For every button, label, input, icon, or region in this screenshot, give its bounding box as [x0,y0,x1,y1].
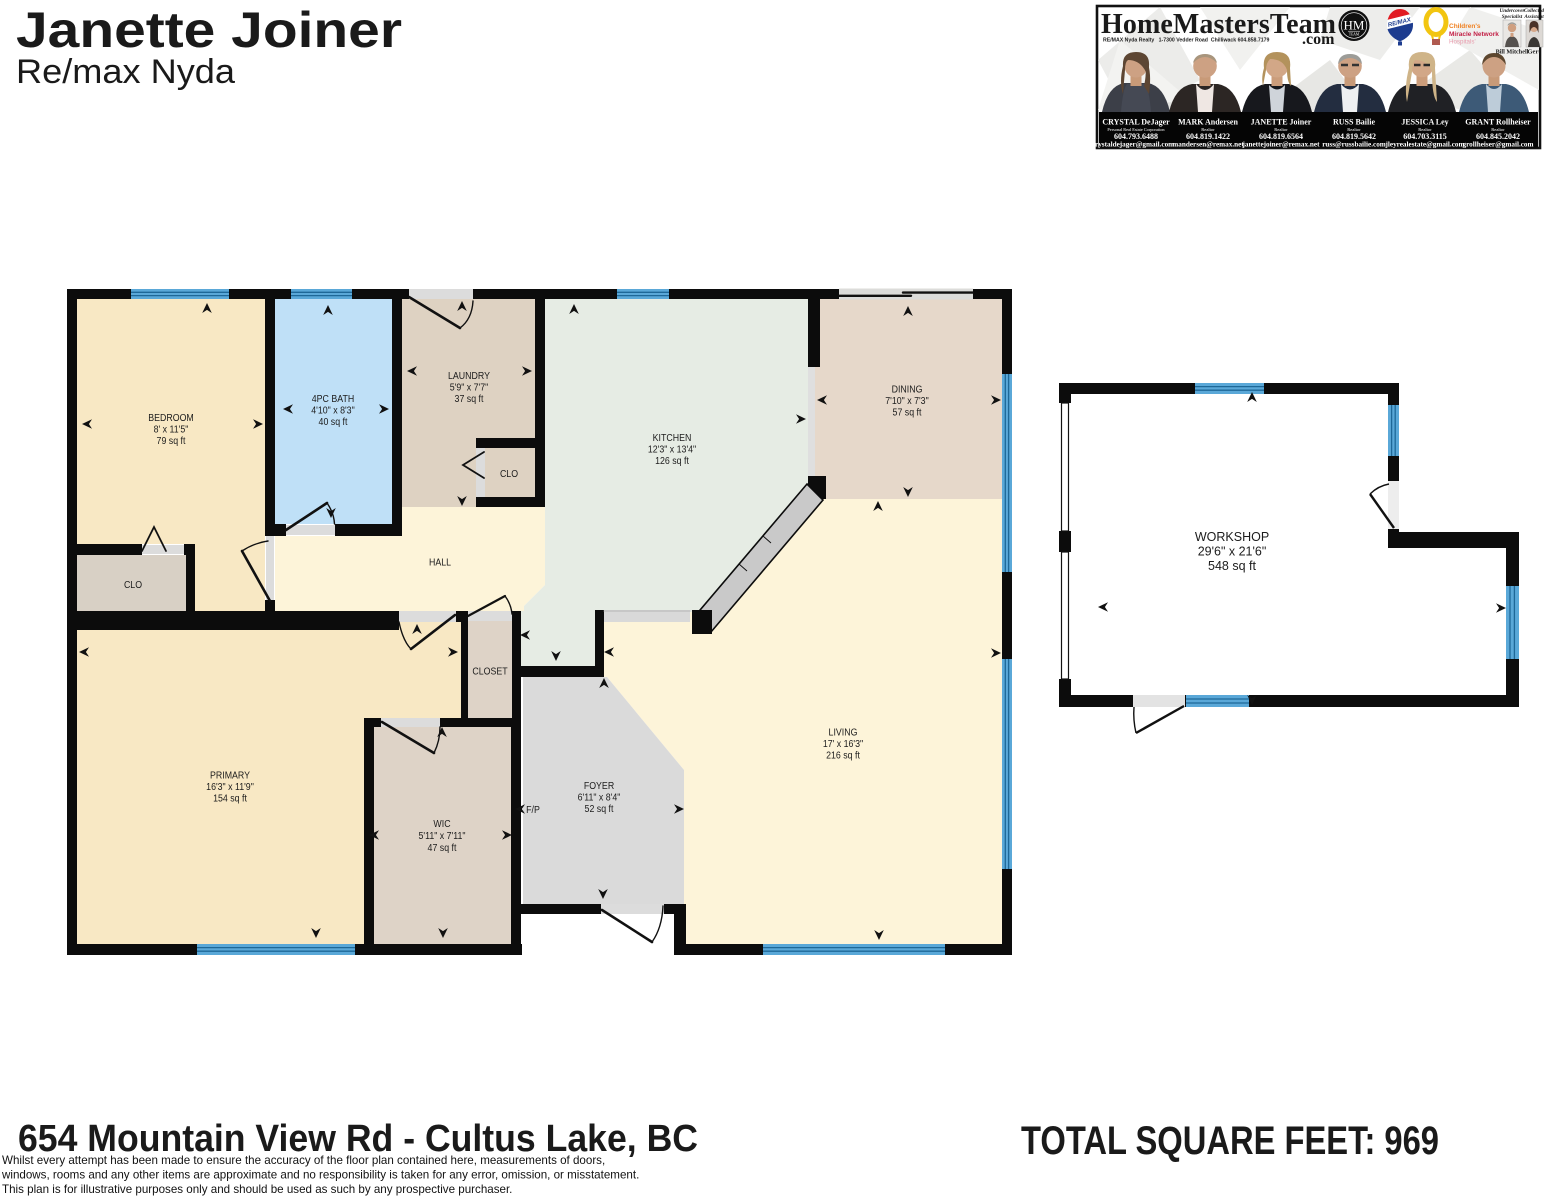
svg-text:CLOSET: CLOSET [472,666,507,678]
svg-text:WORKSHOP: WORKSHOP [1195,530,1269,544]
svg-text:Janette Joiner: Janette Joiner [16,2,402,58]
svg-text:Specialist: Specialist [1502,14,1523,20]
svg-text:40 sq ft: 40 sq ft [319,416,348,428]
svg-text:Re/max Nyda: Re/max Nyda [16,53,235,91]
svg-text:5'9" x 7'7": 5'9" x 7'7" [450,382,489,394]
svg-text:PRIMARY: PRIMARY [210,770,250,782]
svg-text:grollheiser@gmail.com: grollheiser@gmail.com [1462,141,1533,149]
svg-text:HomeMastersTeam: HomeMastersTeam [1101,9,1336,40]
svg-text:57 sq ft: 57 sq ft [893,407,922,419]
svg-text:37 sq ft: 37 sq ft [455,393,484,405]
svg-text:16'3" x 11'9": 16'3" x 11'9" [206,781,254,793]
svg-text:4PC BATH: 4PC BATH [312,393,354,405]
svg-text:RUSS Bailie: RUSS Bailie [1333,118,1375,127]
svg-text:154 sq ft: 154 sq ft [213,793,247,805]
svg-text:7'10" x 7'3": 7'10" x 7'3" [885,395,929,407]
svg-text:Hospitals': Hospitals' [1449,39,1476,46]
svg-text:Bill Mitchell: Bill Mitchell [1496,49,1529,56]
svg-text:HM: HM [1344,18,1365,33]
svg-text:29'6" x 21'6": 29'6" x 21'6" [1198,545,1267,559]
svg-text:MARK Andersen: MARK Andersen [1178,118,1238,127]
svg-text:JANETTE Joiner: JANETTE Joiner [1251,118,1312,127]
svg-text:jleyrealestate@gmail.com: jleyrealestate@gmail.com [1385,141,1465,149]
svg-text:LIVING: LIVING [829,727,858,739]
svg-text:russ@russbailie.com: russ@russbailie.com [1322,141,1386,149]
svg-text:548 sq ft: 548 sq ft [1208,559,1256,573]
svg-text:BEDROOM: BEDROOM [148,412,194,424]
svg-text:This plan is for illustrative: This plan is for illustrative purposes o… [2,1183,512,1196]
svg-text:Gert: Gert [1528,49,1542,56]
svg-text:Miracle Network: Miracle Network [1449,31,1499,38]
svg-text:WIC: WIC [433,818,450,830]
svg-text:79 sq ft: 79 sq ft [157,435,186,447]
svg-text:.com: .com [1302,31,1335,48]
svg-text:KITCHEN: KITCHEN [653,432,692,444]
svg-text:GRANT Rollheiser: GRANT Rollheiser [1465,118,1531,127]
svg-text:mandersen@remax.net: mandersen@remax.net [1172,141,1244,149]
svg-text:RE/MAX Nyda Realty 1-7300 Ve: RE/MAX Nyda Realty 1-7300 Vedder Road Ch… [1103,38,1269,44]
svg-text:216 sq ft: 216 sq ft [826,750,860,762]
svg-text:CRYSTAL DeJager: CRYSTAL DeJager [1102,118,1170,127]
svg-text:126 sq ft: 126 sq ft [655,455,689,467]
svg-text:Assistant: Assistant [1523,14,1544,20]
svg-text:janettejoiner@remax.net: janettejoiner@remax.net [1241,141,1320,149]
svg-text:52 sq ft: 52 sq ft [585,803,614,815]
svg-text:TOTAL SQUARE FEET: 969: TOTAL SQUARE FEET: 969 [1021,1119,1439,1163]
svg-text:5'11" x 7'11": 5'11" x 7'11" [418,830,466,842]
svg-text:17' x 16'3": 17' x 16'3" [823,738,864,750]
svg-text:HALL: HALL [429,557,452,569]
svg-text:4'10" x 8'3": 4'10" x 8'3" [311,405,355,417]
svg-text:Children's: Children's [1449,23,1481,30]
svg-text:Whilst every attempt has been: Whilst every attempt has been made to en… [2,1154,605,1167]
svg-text:JESSICA Ley: JESSICA Ley [1401,118,1448,127]
svg-text:8' x 11'5": 8' x 11'5" [154,424,189,436]
svg-text:CLO: CLO [124,579,143,591]
svg-text:47 sq ft: 47 sq ft [428,842,457,854]
svg-text:crystaldejager@gmail.com: crystaldejager@gmail.com [1092,141,1174,149]
svg-text:windows, rooms and any other i: windows, rooms and any other items are a… [1,1169,639,1182]
svg-text:CLO: CLO [500,468,519,480]
svg-text:TEAM: TEAM [1349,33,1360,37]
svg-text:6'11" x 8'4": 6'11" x 8'4" [578,792,621,804]
svg-text:F/P: F/P [526,804,540,816]
svg-text:DINING: DINING [892,384,923,396]
svg-text:LAUNDRY: LAUNDRY [448,370,490,382]
svg-text:12'3" x 13'4": 12'3" x 13'4" [648,444,697,456]
svg-text:FOYER: FOYER [584,780,614,792]
